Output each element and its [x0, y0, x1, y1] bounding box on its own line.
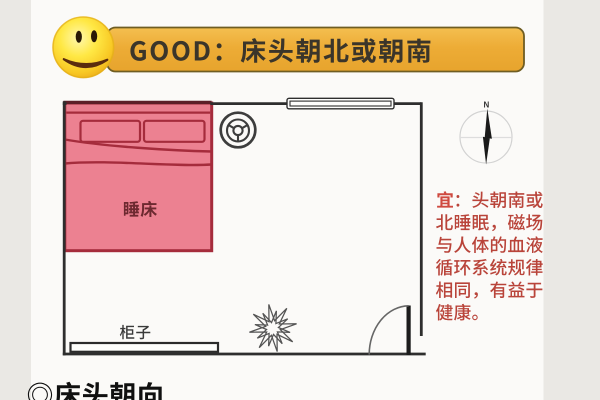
svg-text:N: N: [484, 101, 490, 110]
